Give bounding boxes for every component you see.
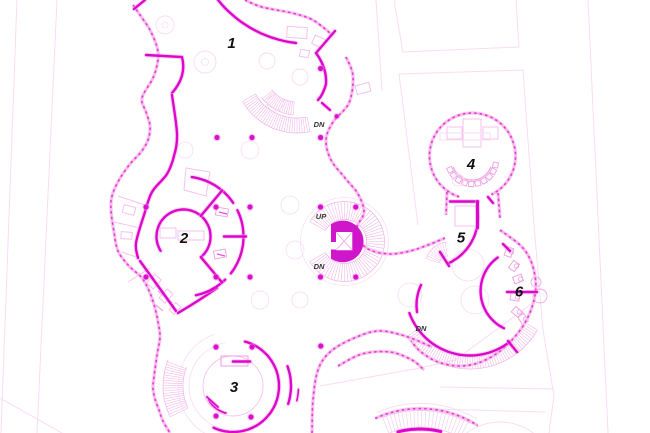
svg-text:5: 5	[457, 230, 466, 247]
svg-text:6: 6	[515, 284, 524, 301]
svg-text:4: 4	[466, 156, 476, 173]
svg-text:1: 1	[227, 35, 235, 52]
svg-text:3: 3	[230, 379, 239, 396]
svg-text:DN: DN	[314, 120, 325, 129]
svg-text:DN: DN	[416, 324, 427, 333]
svg-text:UP: UP	[316, 212, 327, 221]
svg-text:2: 2	[179, 230, 189, 247]
svg-text:DN: DN	[314, 262, 325, 271]
